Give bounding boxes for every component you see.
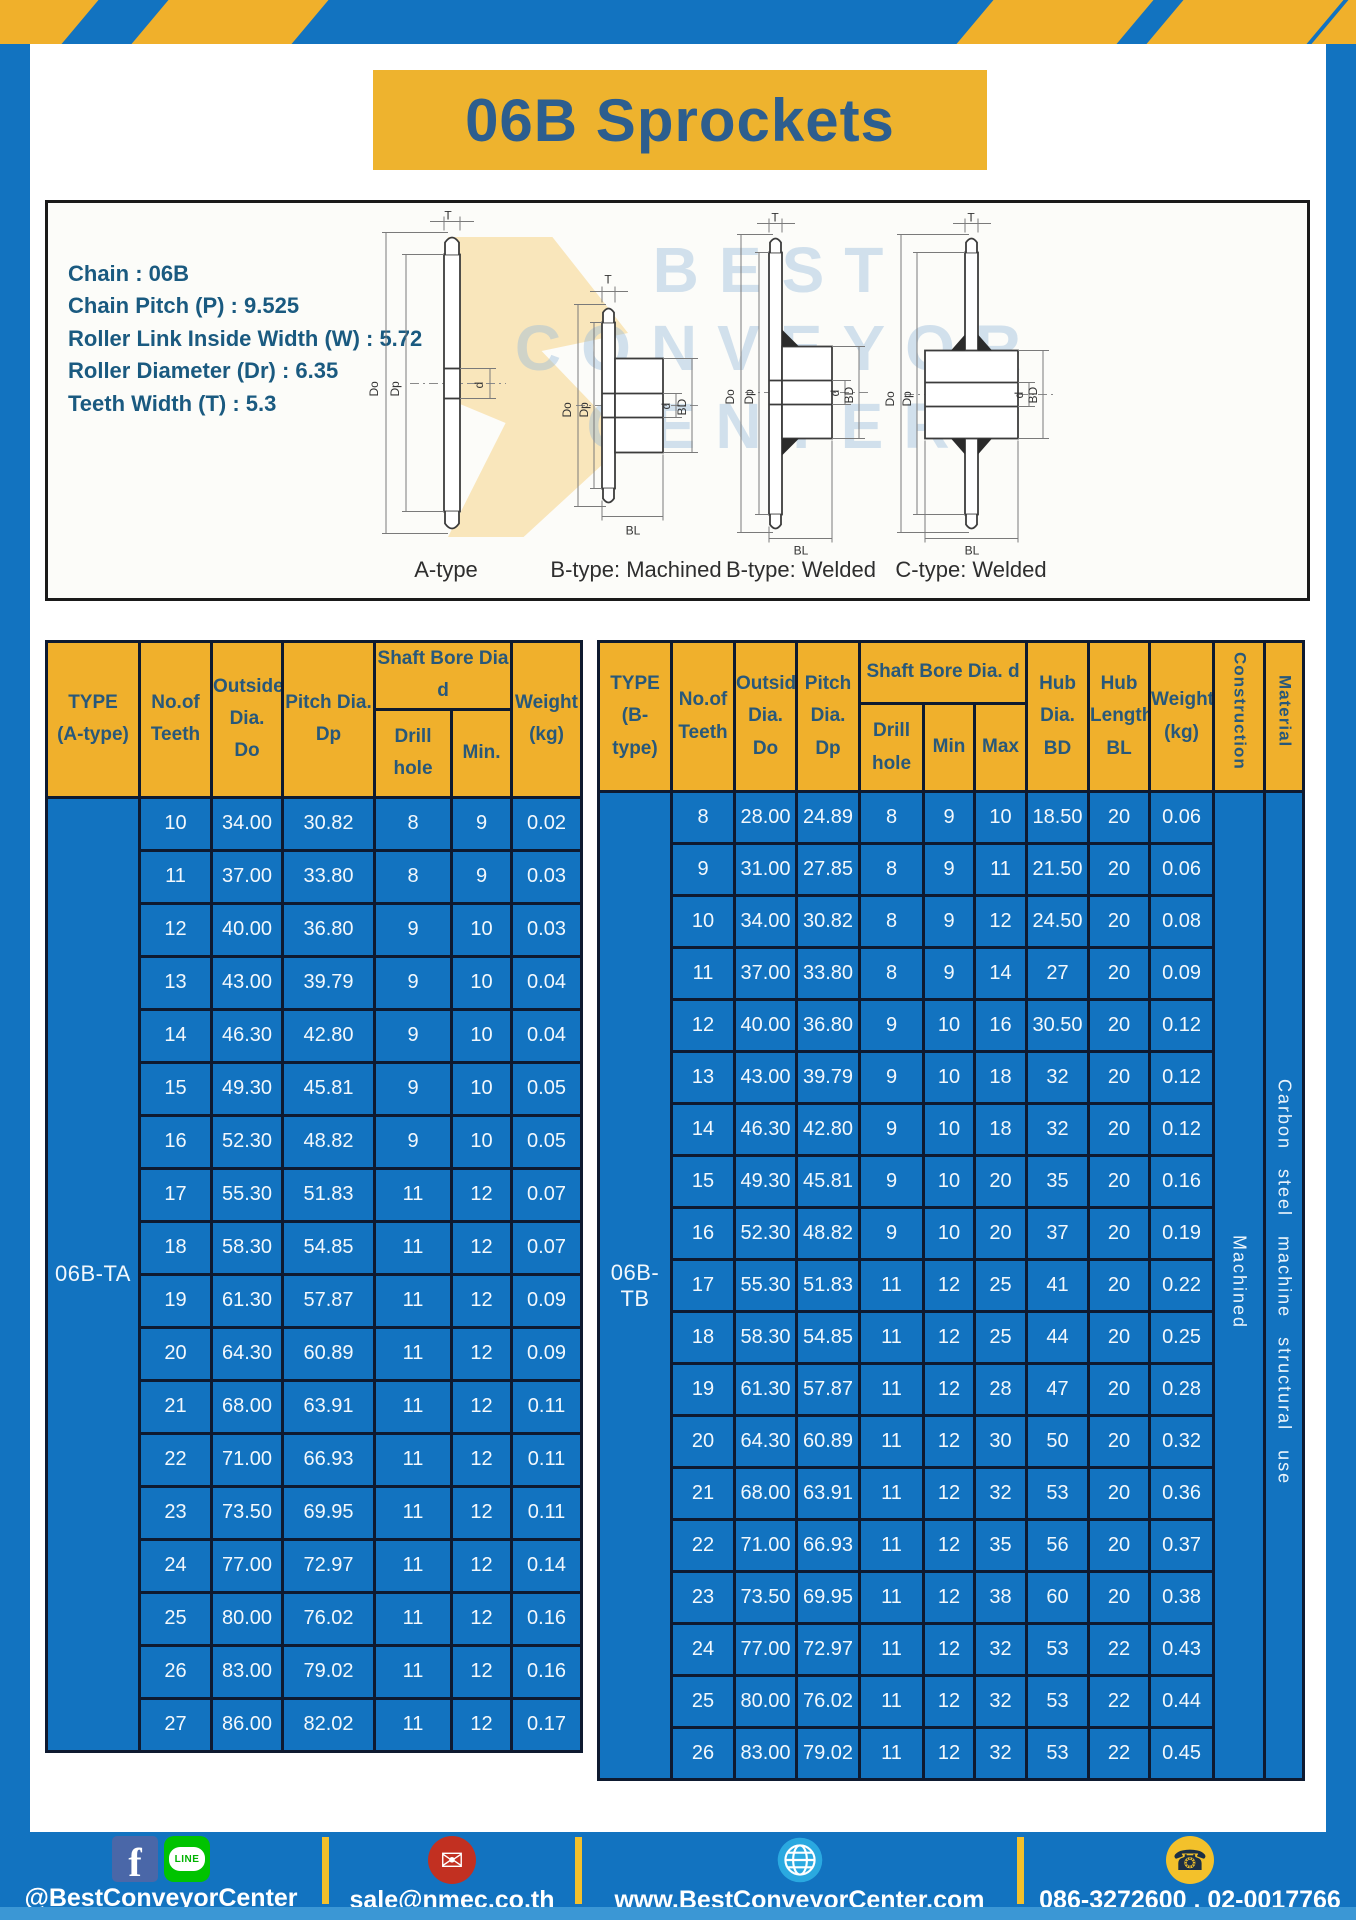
table-cell: 9 xyxy=(860,1156,924,1208)
table-cell: 0.12 xyxy=(1150,1052,1214,1104)
table-cell: 45.81 xyxy=(797,1156,860,1208)
type-label-cell-text: 06B-TB xyxy=(611,1260,659,1311)
table-cell: 10 xyxy=(452,1009,512,1062)
table-cell: 25 xyxy=(975,1260,1027,1312)
table-cell: 69.95 xyxy=(797,1572,860,1624)
table-cell: 20 xyxy=(1089,1416,1150,1468)
table-cell: 0.05 xyxy=(512,1115,582,1168)
table-cell: 20 xyxy=(140,1327,212,1380)
table-cell: 24.50 xyxy=(1027,896,1089,948)
table-cell: 66.93 xyxy=(283,1433,375,1486)
table-row: 1034.0030.82891224.50200.08 xyxy=(599,896,1304,948)
table-cell: 20 xyxy=(1089,1572,1150,1624)
table-cell: 11 xyxy=(140,850,212,903)
table-row: 2477.0072.9711123253220.43 xyxy=(599,1624,1304,1676)
svg-text:BD: BD xyxy=(675,398,689,415)
table-cell: 9 xyxy=(375,956,452,1009)
table-cell: 30.82 xyxy=(797,896,860,948)
website-icon-row xyxy=(776,1836,824,1884)
table-cell: 24.89 xyxy=(797,792,860,844)
email-icon-row: ✉ xyxy=(428,1836,476,1884)
phone-icon: ☎ xyxy=(1166,1836,1214,1884)
table-cell: 61.30 xyxy=(735,1364,797,1416)
table-cell: 8 xyxy=(860,948,924,1000)
table-cell: 11 xyxy=(375,1274,452,1327)
table-row: 2683.0079.0211123253220.45 xyxy=(599,1728,1304,1780)
table-cell: 12 xyxy=(452,1645,512,1698)
table-cell: 11 xyxy=(860,1572,924,1624)
facebook-icon: f xyxy=(112,1836,158,1882)
table-row: 1549.3045.819102035200.16 xyxy=(599,1156,1304,1208)
table-cell: 12 xyxy=(924,1416,975,1468)
table-cell: 18 xyxy=(975,1052,1027,1104)
table-cell: 12 xyxy=(924,1364,975,1416)
table-cell: 22 xyxy=(140,1433,212,1486)
table-cell: 12 xyxy=(452,1380,512,1433)
table-cell: 0.02 xyxy=(512,797,582,850)
col-header-pitch-dia: Pitch Dia. Dp xyxy=(797,642,860,792)
table-cell: 0.37 xyxy=(1150,1520,1214,1572)
table-cell: 0.28 xyxy=(1150,1364,1214,1416)
table-b-body: 06B-TB828.0024.89891018.50200.06Machined… xyxy=(599,792,1304,1780)
table-cell: 8 xyxy=(375,797,452,850)
table-cell: 9 xyxy=(375,1009,452,1062)
table-cell: 0.36 xyxy=(1150,1468,1214,1520)
table-cell: 54.85 xyxy=(283,1221,375,1274)
table-cell: 66.93 xyxy=(797,1520,860,1572)
table-b-header: TYPE (B-type) No.of Teeth Outside Dia. D… xyxy=(599,642,1304,792)
construction-header-text: Construction xyxy=(1225,652,1254,770)
table-cell: 32 xyxy=(1027,1052,1089,1104)
table-cell: 0.11 xyxy=(512,1433,582,1486)
table-cell: 12 xyxy=(140,903,212,956)
table-row: 1137.0033.80891427200.09 xyxy=(599,948,1304,1000)
table-cell: 20 xyxy=(1089,896,1150,948)
table-cell: 0.32 xyxy=(1150,1416,1214,1468)
table-cell: 14 xyxy=(975,948,1027,1000)
table-cell: 11 xyxy=(860,1728,924,1780)
col-header-min: Min. xyxy=(452,709,512,797)
table-cell: 28.00 xyxy=(735,792,797,844)
table-cell: 20 xyxy=(1089,792,1150,844)
table-cell: 12 xyxy=(452,1539,512,1592)
table-cell: 12 xyxy=(924,1520,975,1572)
table-row: 2373.5069.9511123860200.38 xyxy=(599,1572,1304,1624)
table-cell: 0.04 xyxy=(512,1009,582,1062)
table-cell: 18 xyxy=(975,1104,1027,1156)
table-cell: 20 xyxy=(975,1156,1027,1208)
col-header-outside-dia: Outside Dia. Do xyxy=(735,642,797,792)
table-cell: 40.00 xyxy=(735,1000,797,1052)
svg-text:Dp: Dp xyxy=(577,402,591,418)
col-header-min: Min xyxy=(924,704,975,792)
table-cell: 20 xyxy=(1089,1520,1150,1572)
table-cell: 10 xyxy=(672,896,735,948)
table-cell: 0.09 xyxy=(1150,948,1214,1000)
table-cell: 20 xyxy=(1089,1104,1150,1156)
table-cell: 10 xyxy=(452,956,512,1009)
table-cell: 0.12 xyxy=(1150,1000,1214,1052)
table-cell: 11 xyxy=(860,1312,924,1364)
top-decorative-bar xyxy=(0,0,1356,44)
table-cell: 18 xyxy=(140,1221,212,1274)
table-cell: 49.30 xyxy=(212,1062,283,1115)
table-cell: 11 xyxy=(975,844,1027,896)
table-row: 06B-TB828.0024.89891018.50200.06Machined… xyxy=(599,792,1304,844)
table-row: 2064.3060.8911123050200.32 xyxy=(599,1416,1304,1468)
table-cell: 12 xyxy=(452,1327,512,1380)
svg-text:d: d xyxy=(828,390,842,397)
col-header-type: TYPE (A-type) xyxy=(47,642,140,798)
table-cell: 11 xyxy=(375,1698,452,1751)
line-icon: LINE xyxy=(164,1836,210,1882)
type-label-cell: 06B-TA xyxy=(47,797,140,1751)
table-cell: 9 xyxy=(375,1062,452,1115)
table-cell: 19 xyxy=(672,1364,735,1416)
table-cell: 23 xyxy=(672,1572,735,1624)
sprocket-table-b-type: TYPE (B-type) No.of Teeth Outside Dia. D… xyxy=(597,640,1305,1781)
table-cell: 9 xyxy=(924,896,975,948)
table-cell: 80.00 xyxy=(212,1592,283,1645)
table-cell: 25 xyxy=(140,1592,212,1645)
table-cell: 12 xyxy=(452,1168,512,1221)
svg-text:T: T xyxy=(967,211,975,225)
table-cell: 11 xyxy=(375,1539,452,1592)
table-cell: 20 xyxy=(672,1416,735,1468)
table-cell: 73.50 xyxy=(212,1486,283,1539)
table-cell: 64.30 xyxy=(735,1416,797,1468)
table-cell: 49.30 xyxy=(735,1156,797,1208)
footer-divider xyxy=(575,1837,582,1904)
table-a-header: TYPE (A-type) No.of Teeth Outside Dia. D… xyxy=(47,642,582,798)
table-cell: 57.87 xyxy=(283,1274,375,1327)
table-cell: 8 xyxy=(375,850,452,903)
table-cell: 8 xyxy=(860,896,924,948)
table-cell: 10 xyxy=(975,792,1027,844)
table-cell: 21 xyxy=(140,1380,212,1433)
table-cell: 0.12 xyxy=(1150,1104,1214,1156)
table-cell: 20 xyxy=(1089,844,1150,896)
table-cell: 36.80 xyxy=(283,903,375,956)
table-cell: 20 xyxy=(1089,1260,1150,1312)
table-cell: 10 xyxy=(452,1115,512,1168)
table-cell: 9 xyxy=(452,850,512,903)
table-cell: 42.80 xyxy=(283,1009,375,1062)
table-cell: 18 xyxy=(672,1312,735,1364)
email-icon: ✉ xyxy=(428,1836,476,1884)
table-cell: 32 xyxy=(1027,1104,1089,1156)
facebook-glyph: f xyxy=(128,1844,141,1882)
diagram-b-type-welded: Do Dp T d BD xyxy=(711,209,891,591)
table-cell: 11 xyxy=(672,948,735,1000)
table-cell: 12 xyxy=(924,1260,975,1312)
footer-divider xyxy=(322,1837,329,1904)
table-cell: 43.00 xyxy=(735,1052,797,1104)
table-cell: 51.83 xyxy=(283,1168,375,1221)
table-cell: 53 xyxy=(1027,1676,1089,1728)
table-cell: 32 xyxy=(975,1676,1027,1728)
table-cell: 12 xyxy=(924,1572,975,1624)
svg-text:T: T xyxy=(604,273,612,287)
table-cell: 17 xyxy=(672,1260,735,1312)
table-cell: 30.82 xyxy=(283,797,375,850)
table-cell: 25 xyxy=(672,1676,735,1728)
diagram-panel: BEST CONVEYOR CENTER Chain : 06B Chain P… xyxy=(45,200,1310,601)
sprocket-drawing: Do Dp T d BD xyxy=(546,209,726,557)
table-cell: 57.87 xyxy=(797,1364,860,1416)
stripe-decoration xyxy=(0,0,102,44)
table-cell: 0.03 xyxy=(512,850,582,903)
line-bubble: LINE xyxy=(169,1847,205,1871)
table-cell: 63.91 xyxy=(797,1468,860,1520)
table-cell: 9 xyxy=(860,1208,924,1260)
table-cell: 20 xyxy=(1089,948,1150,1000)
table-cell: 12 xyxy=(924,1624,975,1676)
table-cell: 0.04 xyxy=(512,956,582,1009)
table-cell: 36.80 xyxy=(797,1000,860,1052)
col-header-teeth: No.of Teeth xyxy=(140,642,212,798)
table-row: 1858.3054.8511122544200.25 xyxy=(599,1312,1304,1364)
table-cell: 45.81 xyxy=(283,1062,375,1115)
stripe-decoration xyxy=(128,0,332,44)
table-row: 1240.0036.809101630.50200.12 xyxy=(599,1000,1304,1052)
table-cell: 12 xyxy=(452,1698,512,1751)
table-cell: 10 xyxy=(924,1104,975,1156)
title-banner: 06B Sprockets xyxy=(373,70,987,170)
table-cell: 11 xyxy=(375,1645,452,1698)
table-cell: 55.30 xyxy=(735,1260,797,1312)
page-title: 06B Sprockets xyxy=(465,86,895,155)
diagram-a-type: Do Dp T d A-type xyxy=(356,209,536,591)
page-content: 06B Sprockets BEST CONVEYOR CENTER Chain… xyxy=(30,44,1326,1832)
table-cell: 73.50 xyxy=(735,1572,797,1624)
table-row: 1755.3051.8311122541200.22 xyxy=(599,1260,1304,1312)
email-glyph: ✉ xyxy=(440,1844,463,1877)
table-cell: 35 xyxy=(975,1520,1027,1572)
sprocket-drawing: Do Dp T d xyxy=(356,209,536,557)
table-cell: 0.14 xyxy=(512,1539,582,1592)
table-cell: 80.00 xyxy=(735,1676,797,1728)
table-cell: 22 xyxy=(672,1520,735,1572)
table-cell: 11 xyxy=(860,1676,924,1728)
svg-text:Dp: Dp xyxy=(900,391,914,407)
table-cell: 79.02 xyxy=(283,1645,375,1698)
table-cell: 41 xyxy=(1027,1260,1089,1312)
table-cell: 35 xyxy=(1027,1156,1089,1208)
type-label-cell-text: 06B-TA xyxy=(55,1261,131,1286)
table-row: 1446.3042.809101832200.12 xyxy=(599,1104,1304,1156)
table-cell: 9 xyxy=(924,792,975,844)
diagram-caption: B-type: Machined xyxy=(550,557,721,587)
table-cell: 86.00 xyxy=(212,1698,283,1751)
table-cell: 43.00 xyxy=(212,956,283,1009)
table-cell: 9 xyxy=(860,1000,924,1052)
table-row: 1961.3057.8711122847200.28 xyxy=(599,1364,1304,1416)
table-cell: 12 xyxy=(452,1486,512,1539)
col-header-pitch-dia: Pitch Dia. Dp xyxy=(283,642,375,798)
col-header-teeth: No.of Teeth xyxy=(672,642,735,792)
table-cell: 33.80 xyxy=(797,948,860,1000)
col-header-max: Max xyxy=(975,704,1027,792)
table-cell: 20 xyxy=(1089,1208,1150,1260)
social-icon-row: f LINE xyxy=(112,1836,210,1882)
table-cell: 0.05 xyxy=(512,1062,582,1115)
svg-text:d: d xyxy=(472,382,486,389)
table-row: 931.0027.85891121.50200.06 xyxy=(599,844,1304,896)
table-cell: 12 xyxy=(975,896,1027,948)
table-cell: 0.25 xyxy=(1150,1312,1214,1364)
table-cell: 11 xyxy=(375,1380,452,1433)
table-cell: 38 xyxy=(975,1572,1027,1624)
sprocket-drawing: Do Dp T d BD xyxy=(711,209,891,557)
table-cell: 31.00 xyxy=(735,844,797,896)
table-cell: 0.45 xyxy=(1150,1728,1214,1780)
svg-text:BL: BL xyxy=(794,544,809,558)
col-header-drill-hole: Drill hole xyxy=(860,704,924,792)
table-cell: 56 xyxy=(1027,1520,1089,1572)
col-header-material: Material xyxy=(1265,642,1304,792)
table-cell: 0.06 xyxy=(1150,844,1214,896)
catalog-page: 06B Sprockets BEST CONVEYOR CENTER Chain… xyxy=(0,0,1356,1920)
table-cell: 0.17 xyxy=(512,1698,582,1751)
footer-accent-strip xyxy=(0,1907,1356,1920)
table-cell: 12 xyxy=(924,1676,975,1728)
table-cell: 9 xyxy=(375,1115,452,1168)
table-cell: 8 xyxy=(860,792,924,844)
table-cell: 34.00 xyxy=(212,797,283,850)
svg-text:Do: Do xyxy=(723,389,737,405)
table-cell: 22 xyxy=(1089,1624,1150,1676)
table-row: 06B-TA1034.0030.82890.02 xyxy=(47,797,582,850)
table-cell: 0.09 xyxy=(512,1327,582,1380)
table-cell: 48.82 xyxy=(283,1115,375,1168)
table-cell: 9 xyxy=(452,797,512,850)
table-cell: 13 xyxy=(140,956,212,1009)
table-cell: 77.00 xyxy=(212,1539,283,1592)
table-cell: 30.50 xyxy=(1027,1000,1089,1052)
table-cell: 0.11 xyxy=(512,1380,582,1433)
table-cell: 0.19 xyxy=(1150,1208,1214,1260)
table-cell: 22 xyxy=(1089,1676,1150,1728)
table-cell: 77.00 xyxy=(735,1624,797,1676)
table-cell: 20 xyxy=(1089,1312,1150,1364)
table-cell: 20 xyxy=(1089,1364,1150,1416)
table-cell: 17 xyxy=(140,1168,212,1221)
table-cell: 9 xyxy=(375,903,452,956)
phone-glyph: ☎ xyxy=(1173,1844,1208,1877)
svg-text:Dp: Dp xyxy=(742,389,756,405)
table-cell: 52.30 xyxy=(735,1208,797,1260)
table-cell: 13 xyxy=(672,1052,735,1104)
footer-divider xyxy=(1017,1837,1024,1904)
sprocket-drawing: Do Dp T d BD xyxy=(881,209,1061,557)
table-cell: 12 xyxy=(452,1274,512,1327)
table-cell: 12 xyxy=(924,1728,975,1780)
table-row: 2271.0066.9311123556200.37 xyxy=(599,1520,1304,1572)
table-cell: 79.02 xyxy=(797,1728,860,1780)
table-cell: 0.16 xyxy=(512,1592,582,1645)
table-cell: 60 xyxy=(1027,1572,1089,1624)
col-header-outside-dia: Outside Dia. Do xyxy=(212,642,283,798)
table-cell: 16 xyxy=(975,1000,1027,1052)
table-cell: 0.44 xyxy=(1150,1676,1214,1728)
table-cell: 28 xyxy=(975,1364,1027,1416)
table-cell: 0.16 xyxy=(1150,1156,1214,1208)
table-cell: 26 xyxy=(672,1728,735,1780)
table-cell: 25 xyxy=(975,1312,1027,1364)
table-cell: 0.16 xyxy=(512,1645,582,1698)
type-label-cell: 06B-TB xyxy=(599,792,672,1780)
svg-text:BD: BD xyxy=(1026,386,1040,403)
table-cell: 0.07 xyxy=(512,1221,582,1274)
col-header-type: TYPE (B-type) xyxy=(599,642,672,792)
svg-text:BD: BD xyxy=(842,386,856,403)
table-cell: 37 xyxy=(1027,1208,1089,1260)
table-cell: 76.02 xyxy=(797,1676,860,1728)
table-cell: 60.89 xyxy=(797,1416,860,1468)
table-cell: 64.30 xyxy=(212,1327,283,1380)
svg-text:BL: BL xyxy=(965,544,980,558)
table-cell: 10 xyxy=(924,1052,975,1104)
table-row: 1652.3048.829102037200.19 xyxy=(599,1208,1304,1260)
table-cell: 55.30 xyxy=(212,1168,283,1221)
table-cell: 10 xyxy=(924,1156,975,1208)
table-cell: 44 xyxy=(1027,1312,1089,1364)
table-cell: 11 xyxy=(860,1416,924,1468)
table-cell: 9 xyxy=(924,844,975,896)
svg-text:Do: Do xyxy=(367,381,381,397)
material-header-text: Material xyxy=(1270,675,1299,747)
table-cell: 22 xyxy=(1089,1728,1150,1780)
table-cell: 58.30 xyxy=(212,1221,283,1274)
table-cell: 11 xyxy=(375,1486,452,1539)
table-cell: 8 xyxy=(672,792,735,844)
table-cell: 11 xyxy=(375,1433,452,1486)
col-header-shaft-bore-group: Shaft Bore Dia d xyxy=(375,642,512,710)
table-cell: 34.00 xyxy=(735,896,797,948)
svg-text:BL: BL xyxy=(626,524,641,538)
stripe-decoration xyxy=(953,0,1157,44)
table-cell: 0.08 xyxy=(1150,896,1214,948)
contact-footer: f LINE @BestConveyorCenter ✉ sale@nmec.c… xyxy=(0,1832,1356,1920)
table-cell: 16 xyxy=(672,1208,735,1260)
table-cell: 71.00 xyxy=(735,1520,797,1572)
table-cell: 24 xyxy=(140,1539,212,1592)
table-cell: 82.02 xyxy=(283,1698,375,1751)
table-cell: 12 xyxy=(452,1221,512,1274)
table-cell: 47 xyxy=(1027,1364,1089,1416)
table-cell: 69.95 xyxy=(283,1486,375,1539)
svg-text:Dp: Dp xyxy=(388,381,402,397)
table-cell: 9 xyxy=(924,948,975,1000)
table-cell: 33.80 xyxy=(283,850,375,903)
table-cell: 8 xyxy=(860,844,924,896)
table-cell: 0.07 xyxy=(512,1168,582,1221)
diagram-b-type-machined: Do Dp T d BD xyxy=(546,209,726,591)
table-cell: 68.00 xyxy=(212,1380,283,1433)
material-value-cell: Carbon steel machine structural use xyxy=(1265,792,1304,1780)
table-cell: 61.30 xyxy=(212,1274,283,1327)
col-header-hub-dia: Hub Dia. BD xyxy=(1027,642,1089,792)
table-cell: 10 xyxy=(140,797,212,850)
table-cell: 48.82 xyxy=(797,1208,860,1260)
table-cell: 72.97 xyxy=(283,1539,375,1592)
table-row: 1343.0039.799101832200.12 xyxy=(599,1052,1304,1104)
table-cell: 10 xyxy=(452,1062,512,1115)
table-row: 2168.0063.9111123253200.36 xyxy=(599,1468,1304,1520)
phone-icon-row: ☎ xyxy=(1166,1836,1214,1884)
table-cell: 20 xyxy=(1089,1052,1150,1104)
